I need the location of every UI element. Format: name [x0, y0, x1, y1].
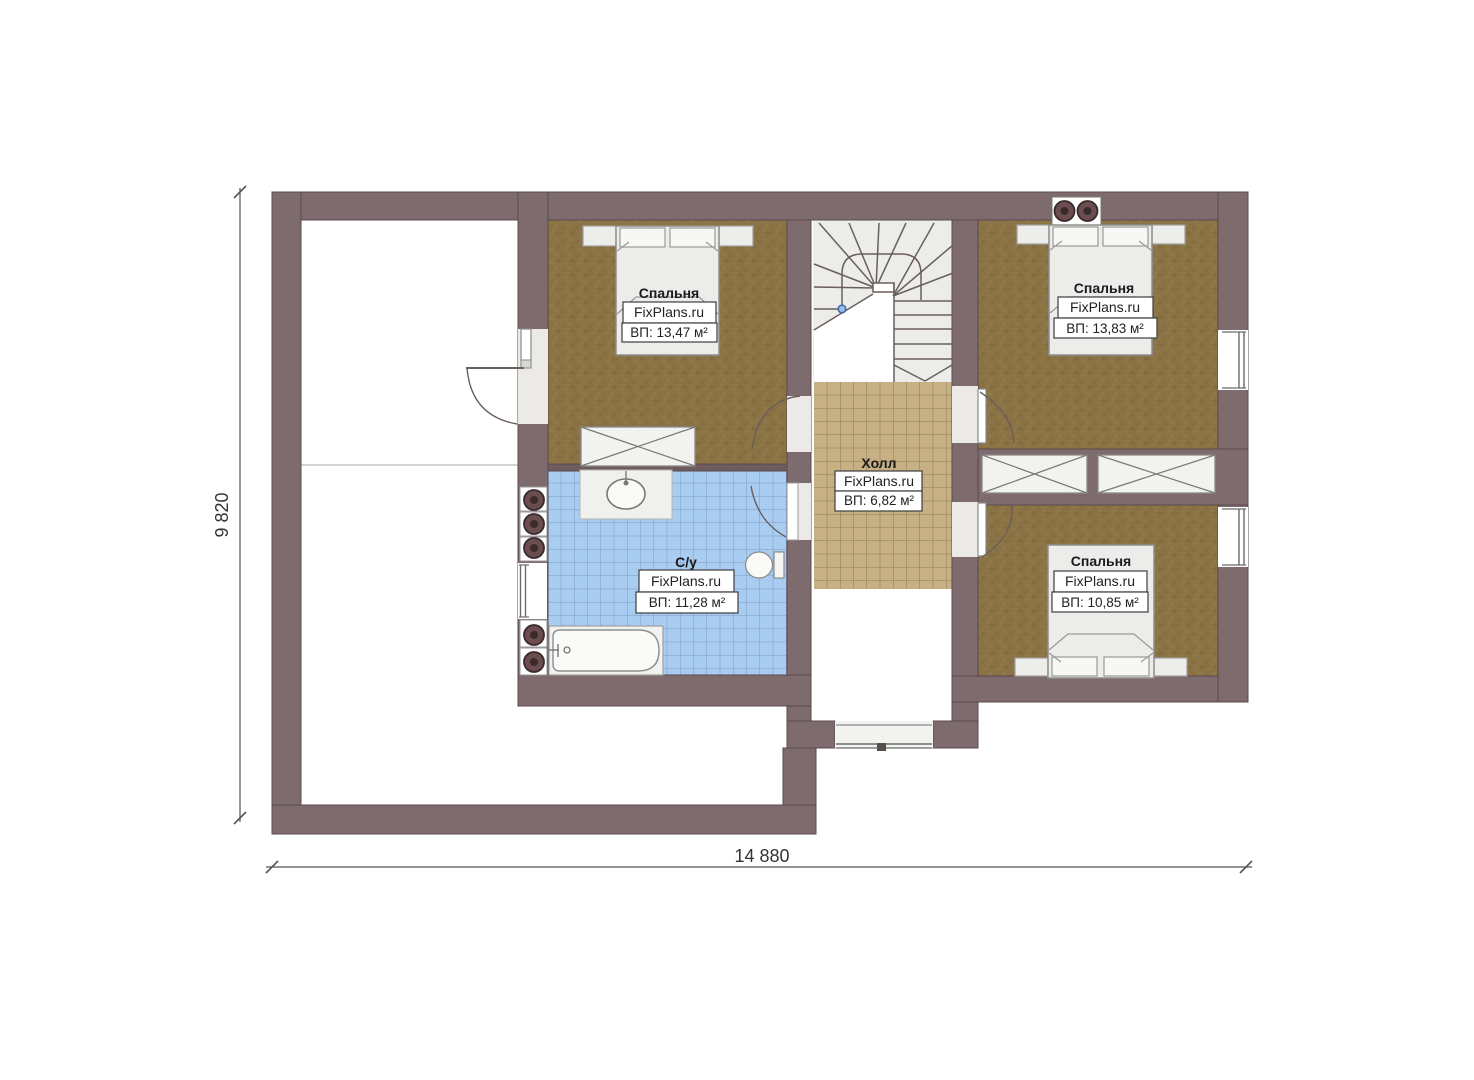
- svg-text:ВП: 6,82 м²: ВП: 6,82 м²: [844, 493, 915, 508]
- svg-text:9 820: 9 820: [212, 492, 232, 537]
- svg-text:ВП: 13,47 м²: ВП: 13,47 м²: [630, 325, 708, 340]
- svg-text:FixPlans.ru: FixPlans.ru: [1070, 299, 1140, 315]
- svg-text:ВП: 13,83 м²: ВП: 13,83 м²: [1066, 321, 1144, 336]
- svg-text:FixPlans.ru: FixPlans.ru: [1065, 573, 1135, 589]
- svg-text:FixPlans.ru: FixPlans.ru: [844, 473, 914, 489]
- svg-text:С/у: С/у: [675, 554, 697, 570]
- svg-text:14 880: 14 880: [734, 846, 789, 866]
- svg-text:FixPlans.ru: FixPlans.ru: [634, 304, 704, 320]
- svg-text:Холл: Холл: [861, 455, 896, 471]
- svg-text:FixPlans.ru: FixPlans.ru: [651, 573, 721, 589]
- svg-text:ВП: 10,85 м²: ВП: 10,85 м²: [1061, 595, 1139, 610]
- svg-text:ВП: 11,28 м²: ВП: 11,28 м²: [649, 595, 726, 610]
- svg-text:Спальня: Спальня: [1074, 280, 1134, 296]
- svg-text:Спальня: Спальня: [639, 285, 699, 301]
- svg-text:Спальня: Спальня: [1071, 553, 1131, 569]
